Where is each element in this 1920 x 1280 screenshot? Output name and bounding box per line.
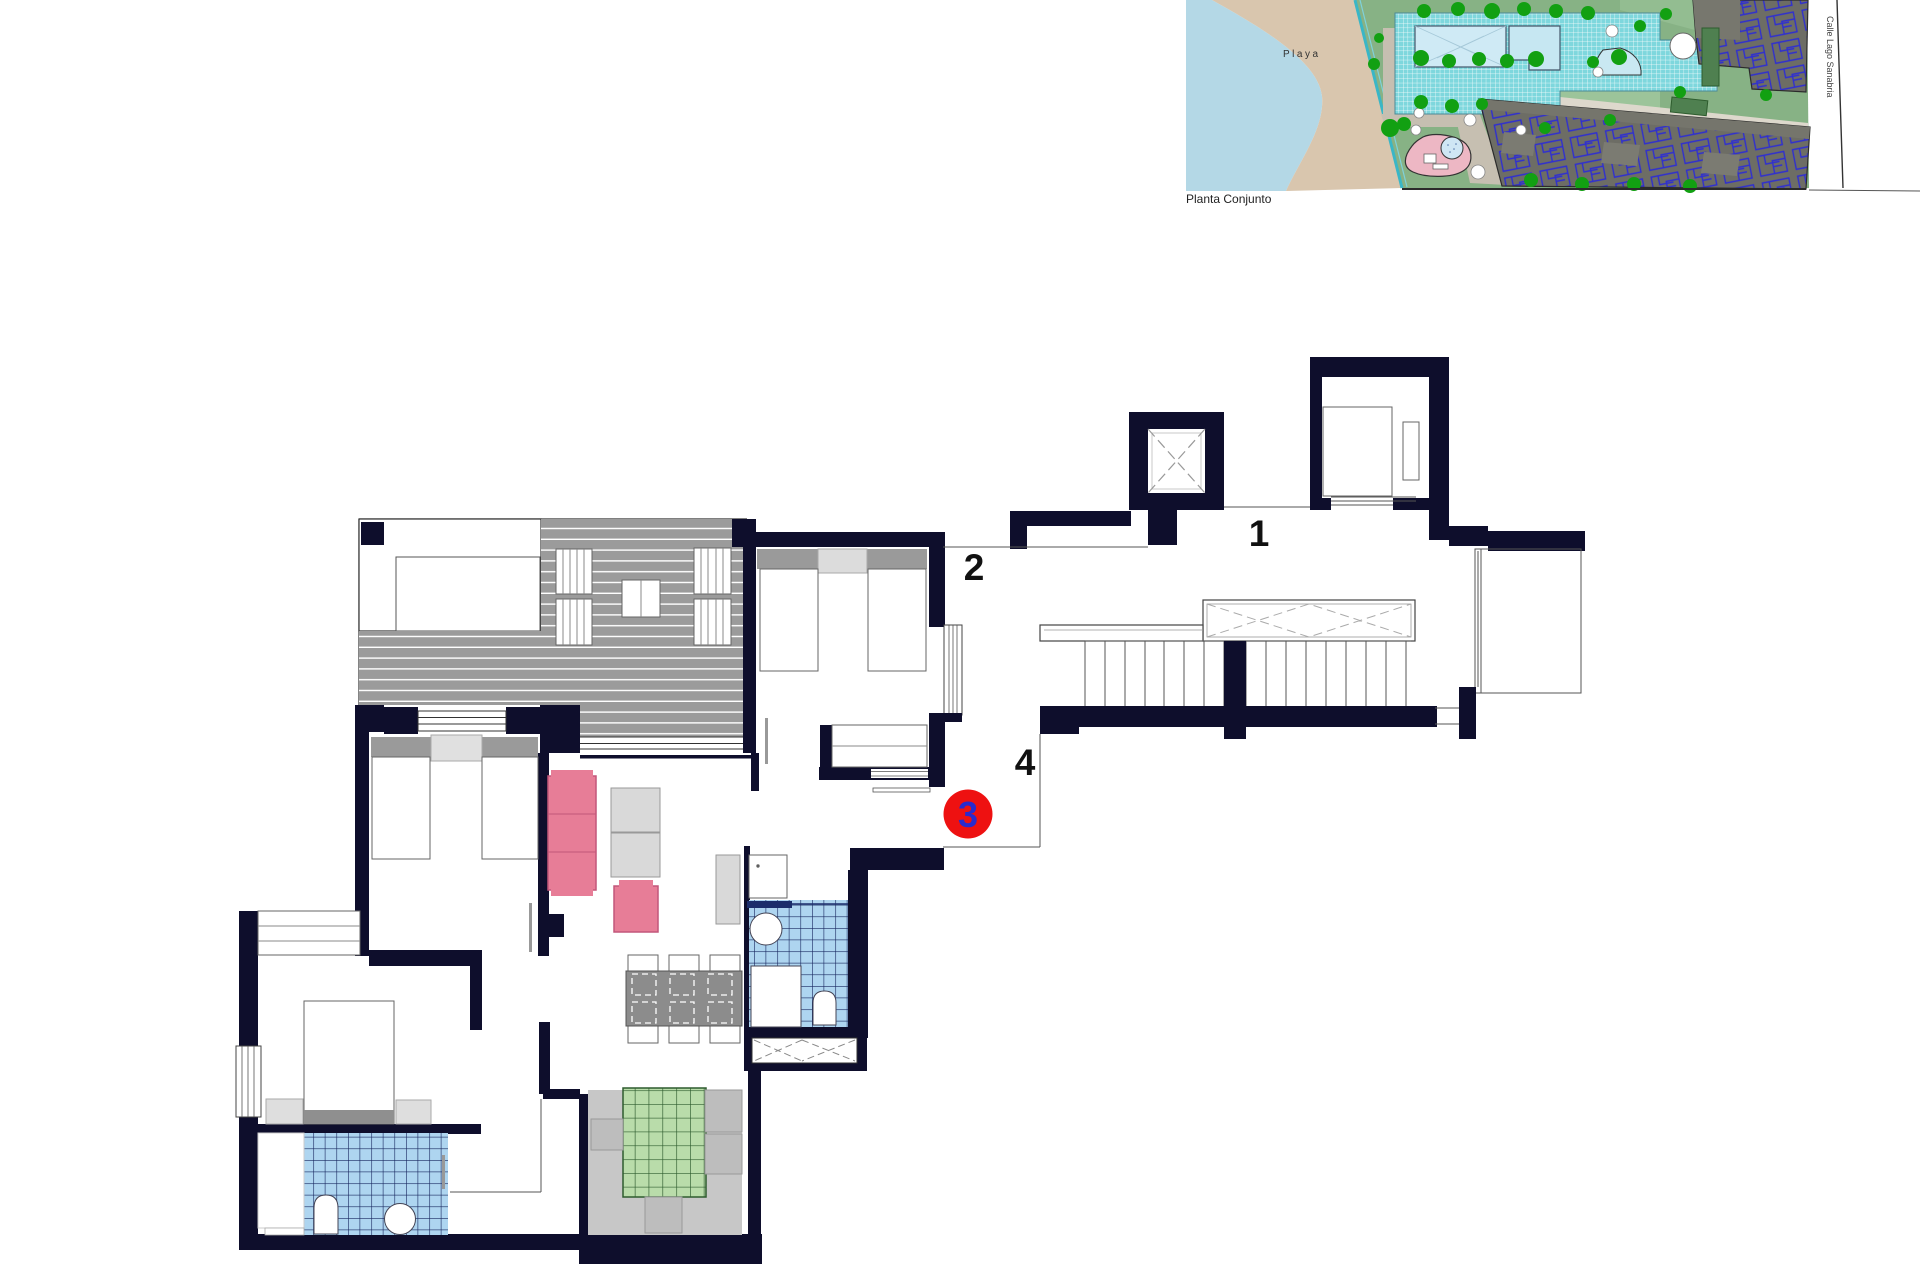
svg-text:4: 4	[1015, 742, 1036, 783]
svg-text:1: 1	[1249, 513, 1270, 554]
svg-text:Planta Conjunto: Planta Conjunto	[1186, 192, 1272, 206]
svg-text:2: 2	[964, 547, 985, 588]
svg-text:3: 3	[958, 794, 978, 835]
svg-text:Playa: Playa	[1283, 49, 1321, 60]
svg-text:Calle Lago Sanabria: Calle Lago Sanabria	[1825, 16, 1835, 98]
